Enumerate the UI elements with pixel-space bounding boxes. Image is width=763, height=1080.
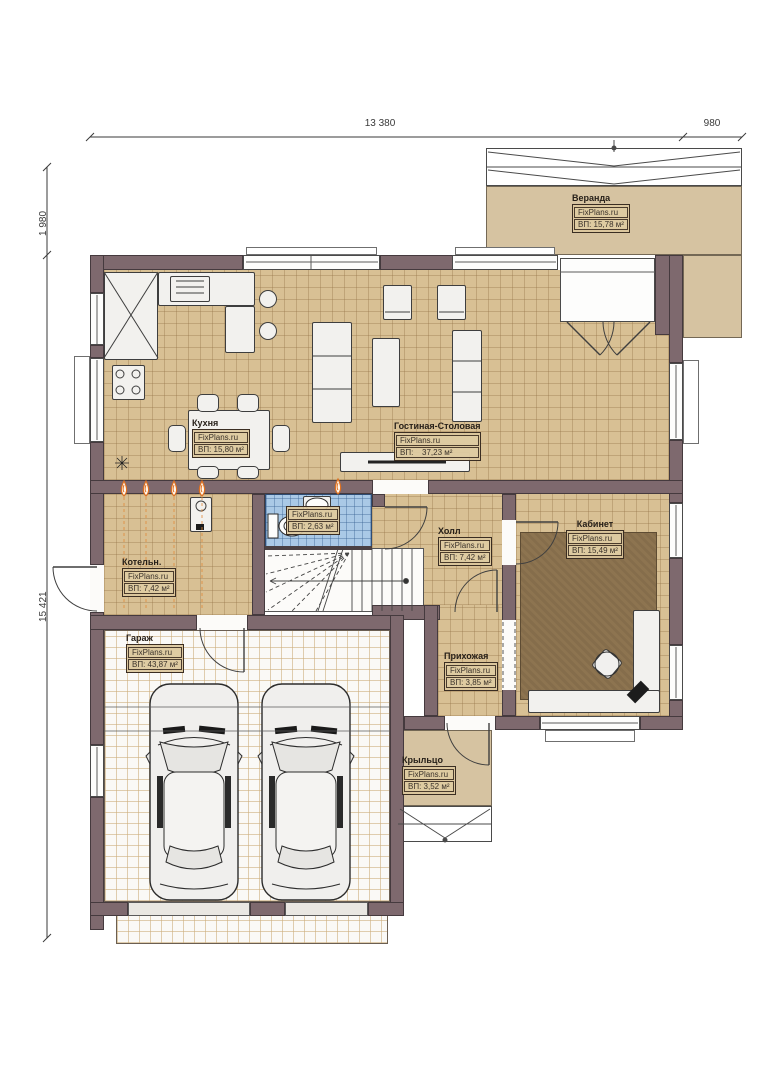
fixplans-watermark: FixPlans.ru [404, 769, 454, 780]
room-area: ВП: 2,63 м² [288, 521, 338, 532]
chair-icon [272, 425, 290, 452]
room-area: ВП: 15,49 м² [568, 545, 622, 556]
stool-icon [259, 290, 277, 308]
room-area-prefix: ВП: [400, 448, 422, 457]
door-opening [445, 716, 495, 730]
window [243, 255, 380, 270]
wall [428, 480, 683, 494]
room-name: Котельн. [122, 557, 176, 567]
wall [372, 494, 385, 507]
veranda-steps [486, 148, 742, 186]
fixplans-watermark: FixPlans.ru [446, 665, 496, 676]
chair-icon [197, 394, 219, 412]
room-name: Кухня [192, 418, 250, 428]
room-name: Веранда [572, 193, 630, 203]
room-label-garage: Гараж FixPlans.ru ВП: 43,87 м² [126, 633, 184, 673]
room-area: ВП: 3,52 м² [404, 781, 454, 792]
wall [252, 494, 265, 615]
kitchen-corner-cabinet [104, 272, 158, 360]
bathroom-bottom-wall [265, 546, 372, 550]
wall [90, 902, 128, 916]
porch-steps [398, 806, 492, 842]
room-area: ВП: 7,42 м² [440, 552, 490, 563]
wall [90, 480, 373, 494]
room-area: ВП: 7,42 м² [124, 583, 174, 594]
kitchen-island [225, 306, 255, 353]
veranda-door-bay [560, 258, 655, 322]
fixplans-watermark: FixPlans.ru [568, 533, 622, 544]
room-area: ВП: 15,78 м² [574, 219, 628, 230]
room-info-box: FixPlans.ru ВП: 2,63 м² [286, 506, 340, 535]
room-name: Крыльцо [402, 755, 456, 765]
room-info-box: FixPlans.ru ВП: 15,78 м² [572, 204, 630, 233]
dimension-width-veranda: 980 [690, 118, 734, 129]
window [90, 358, 104, 442]
room-label-kitchen: Кухня FixPlans.ru ВП: 15,80 м² [192, 418, 250, 458]
room-name: Кабинет [566, 519, 624, 529]
stove-icon [112, 365, 145, 400]
room-name: Холл [438, 526, 492, 536]
room-label-entry: Прихожая FixPlans.ru ВП: 3,85 м² [444, 651, 498, 691]
wall [669, 255, 683, 363]
wall [90, 255, 243, 270]
fixplans-watermark: FixPlans.ru [124, 571, 174, 582]
chair-icon [168, 425, 186, 452]
garage-door [285, 902, 368, 916]
room-info-box: FixPlans.ru ВП: 15,49 м² [566, 530, 624, 559]
room-label-veranda: Веранда FixPlans.ru ВП: 15,78 м² [572, 193, 630, 233]
wall [640, 716, 683, 730]
room-name: Прихожая [444, 651, 498, 661]
cased-opening [502, 620, 516, 690]
window-sill [246, 247, 377, 255]
wall [669, 558, 683, 645]
window-sill [74, 356, 90, 444]
room-info-box: FixPlans.ru ВП: 37,23 м² [394, 432, 481, 461]
floor-plan-canvas: 13 380 980 1 980 15 421 Веранда FixPlans… [0, 0, 763, 1080]
chair-icon [237, 466, 259, 479]
fixplans-watermark: FixPlans.ru [574, 207, 628, 218]
desk [633, 610, 660, 695]
door-opening [502, 520, 516, 565]
room-info-box: FixPlans.ru ВП: 3,52 м² [402, 766, 456, 795]
wall [424, 605, 438, 716]
room-label-boiler: Котельн. FixPlans.ru ВП: 7,42 м² [122, 557, 176, 597]
chair-icon [237, 394, 259, 412]
room-label-living-dining: Гостиная-Столовая FixPlans.ru ВП: 37,23 … [394, 421, 481, 461]
garage-apron [116, 916, 388, 944]
wall [90, 612, 104, 745]
wall [495, 716, 540, 730]
wall [368, 902, 404, 916]
boiler-unit-icon [190, 497, 212, 532]
room-area: ВП: 15,80 м² [194, 444, 248, 455]
fixplans-watermark: FixPlans.ru [194, 432, 248, 443]
wall [90, 255, 104, 293]
armchair [437, 285, 466, 320]
wall [247, 615, 404, 630]
desk [528, 690, 660, 713]
dimension-height-main: 15 421 [38, 591, 49, 622]
room-label-porch: Крыльцо FixPlans.ru ВП: 3,52 м² [402, 755, 456, 795]
room-label-bathroom: FixPlans.ru ВП: 2,63 м² [286, 506, 340, 535]
room-info-box: FixPlans.ru ВП: 15,80 м² [192, 429, 250, 458]
fixplans-watermark: FixPlans.ru [288, 509, 338, 520]
room-info-box: FixPlans.ru ВП: 3,85 м² [444, 662, 498, 691]
wall [250, 902, 285, 916]
veranda-floor-side [683, 255, 742, 338]
passage-opening [373, 480, 428, 494]
window [452, 255, 558, 270]
wall [90, 442, 104, 565]
room-info-box: FixPlans.ru ВП: 43,87 м² [126, 644, 184, 673]
door-opening [90, 565, 104, 612]
room-info-box: FixPlans.ru ВП: 7,42 м² [438, 537, 492, 566]
sofa [452, 330, 482, 422]
oven-icon [170, 276, 210, 302]
room-area-value: 37,23 м² [422, 448, 452, 457]
window-sill [545, 730, 635, 742]
fixplans-watermark: FixPlans.ru [128, 647, 182, 658]
stairs-area [262, 548, 424, 612]
door-opening [197, 615, 247, 630]
window-sill [455, 247, 555, 255]
fixplans-watermark: FixPlans.ru [396, 435, 479, 446]
chair-icon [197, 466, 219, 479]
room-area: ВП: 3,85 м² [446, 677, 496, 688]
window [669, 645, 683, 700]
sofa [312, 322, 352, 423]
room-area: ВП: 37,23 м² [396, 447, 479, 458]
room-area: ВП: 43,87 м² [128, 659, 182, 670]
dimension-width-main: 13 380 [330, 118, 430, 129]
wall [90, 615, 197, 630]
stool-icon [259, 322, 277, 340]
wall [380, 255, 455, 270]
fixplans-watermark: FixPlans.ru [440, 540, 490, 551]
room-label-office: Кабинет FixPlans.ru ВП: 15,49 м² [566, 519, 624, 559]
room-label-hall: Холл FixPlans.ru ВП: 7,42 м² [438, 526, 492, 566]
room-name: Гараж [126, 633, 184, 643]
wall [404, 716, 445, 730]
window [90, 745, 104, 797]
garage-door [128, 902, 250, 916]
room-info-box: FixPlans.ru ВП: 7,42 м² [122, 568, 176, 597]
coffee-table [372, 338, 400, 407]
window [90, 293, 104, 345]
armchair [383, 285, 412, 320]
window-sill [683, 360, 699, 444]
window [669, 363, 683, 440]
window [669, 503, 683, 558]
wall [90, 345, 104, 358]
dimension-offset-top: 1 980 [38, 211, 49, 236]
room-name: Гостиная-Столовая [394, 421, 481, 431]
window [540, 716, 640, 730]
